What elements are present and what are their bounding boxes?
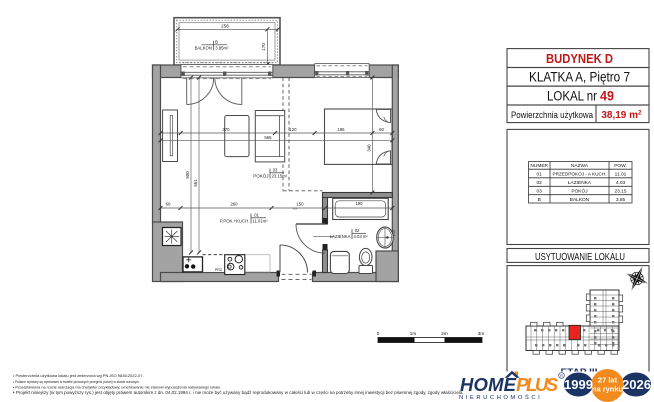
svg-text:27 lat: 27 lat [598,376,618,385]
svg-text:NUMER: NUMER [530,163,548,169]
svg-text:BALKON: BALKON [195,46,212,51]
svg-text:ŁAZIENKA: ŁAZIENKA [568,180,592,186]
svg-text:185: 185 [337,127,345,132]
svg-text:02: 02 [537,180,543,186]
svg-text:• Podane wymiary są wymiarami: • Podane wymiary są wymiarami w świetle … [13,380,140,384]
svg-text:3m: 3m [478,331,485,336]
svg-text:2m: 2m [441,331,448,336]
svg-text:1999: 1999 [564,377,593,392]
svg-text:P.POK.+KUCH.: P.POK.+KUCH. [220,219,250,224]
svg-text:POKÓJ: POKÓJ [571,188,588,195]
svg-text:R: R [560,374,563,378]
svg-text:KLATKA A, Piętro 7: KLATKA A, Piętro 7 [529,70,630,85]
svg-text:170: 170 [261,43,266,51]
svg-text:BUDYNEK D: BUDYNEK D [546,51,613,66]
svg-text:POKÓJ: POKÓJ [253,173,268,179]
svg-text:370: 370 [222,127,230,132]
svg-text:BALKON: BALKON [570,197,590,203]
svg-text:• Przedstawiona na rzucie ara: • Przedstawiona na rzucie aranżacja ma c… [13,385,221,389]
svg-text:1m: 1m [410,331,417,336]
svg-text:2026: 2026 [622,377,651,392]
svg-text:23.15: 23.15 [614,189,626,195]
svg-text:03: 03 [537,189,543,195]
svg-text:HOMEPLUS: HOMEPLUS [460,374,559,395]
svg-text:3.85m²: 3.85m² [215,46,229,51]
svg-text:03: 03 [273,167,278,172]
svg-text:B: B [538,197,541,203]
svg-text:120: 120 [289,127,297,132]
svg-text:02: 02 [355,228,360,233]
svg-text:3.85: 3.85 [616,197,626,203]
svg-text:11.01m²: 11.01m² [253,219,269,224]
svg-text:«»: «» [292,206,298,211]
svg-text:NIERUCHOMOŚCI: NIERUCHOMOŚCI [459,393,542,401]
svg-text:60: 60 [166,202,171,207]
svg-text:23.15m²: 23.15m² [272,174,288,179]
svg-text:na rynku: na rynku [592,385,624,394]
svg-text:210: 210 [391,229,396,236]
svg-text:• Powierzchnia użytkowa lokal: • Powierzchnia użytkowa lokalu jest zmie… [13,373,144,378]
svg-text:Powierzchnia użytkowa: Powierzchnia użytkowa [511,110,594,120]
svg-text:340: 340 [367,144,372,152]
svg-text:38,19 m2: 38,19 m2 [601,110,642,122]
svg-text:500: 500 [185,171,190,179]
svg-text:260: 260 [230,202,238,207]
svg-text:11.01: 11.01 [615,172,627,178]
svg-text:60: 60 [379,127,384,132]
svg-text:01: 01 [537,172,543,178]
svg-text:4.03 m²: 4.03 m² [354,234,369,239]
svg-text:ŁAZIENKA: ŁAZIENKA [330,234,351,239]
svg-text:150: 150 [296,202,304,207]
svg-text:PRZ: PRZ [215,268,223,272]
svg-text:4.03: 4.03 [616,180,626,186]
svg-text:• Projekt niniejszy (w tym po: • Projekt niniejszy (w tym powyższy rys.… [13,390,464,395]
svg-text:256: 256 [221,23,229,28]
svg-text:01: 01 [254,212,259,217]
svg-text:B: B [215,39,218,44]
svg-text:POW.: POW. [614,163,627,169]
svg-text:LOKAL nr49: LOKAL nr49 [547,89,614,104]
svg-text:0: 0 [377,331,380,336]
svg-text:NAZWA: NAZWA [571,163,589,169]
svg-text:190: 190 [355,201,363,206]
svg-text:USYTUOWANIE LOKALU: USYTUOWANIE LOKALU [535,251,625,263]
svg-text:561: 561 [193,179,198,187]
svg-text:PRZEDPOKÓJ - A KUCH.: PRZEDPOKÓJ - A KUCH. [553,172,607,177]
svg-text:565: 565 [264,135,272,140]
